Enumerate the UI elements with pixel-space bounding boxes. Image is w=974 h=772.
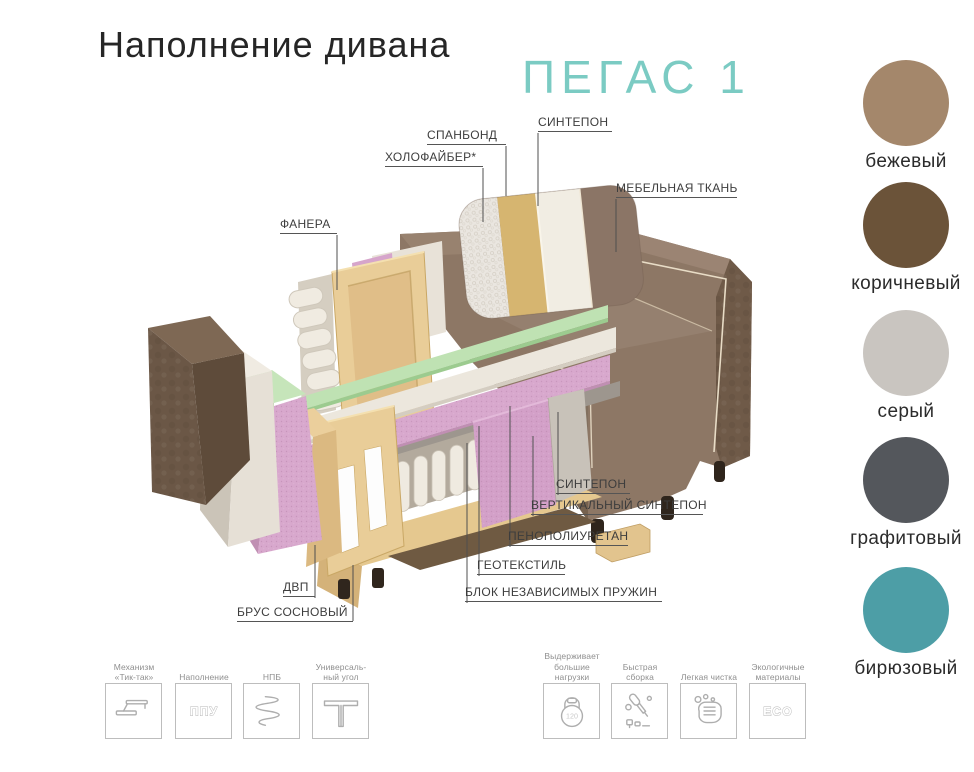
spring-block-icon bbox=[250, 689, 294, 733]
feature-tick-tock-label: Механизм «Тик-так» bbox=[97, 662, 171, 683]
swatch-beige-label: бежевый bbox=[843, 151, 969, 173]
feature-npb: НПБ bbox=[235, 645, 309, 743]
swatch-gray-circle bbox=[863, 310, 949, 396]
feature-eco-materials: Экологичные материалы ECO bbox=[741, 645, 815, 743]
feature-quick-assembly-box bbox=[611, 683, 668, 739]
feature-npb-box bbox=[243, 683, 300, 739]
layered-back-pillow bbox=[456, 183, 646, 321]
quick-assembly-icon bbox=[618, 689, 662, 733]
swatch-graphite-label: графитовый bbox=[843, 528, 969, 550]
feature-universal-corner: Универсаль- ный угол bbox=[304, 645, 378, 743]
swatch-brown-circle bbox=[863, 182, 949, 268]
label-spring-block: БЛОК НЕЗАВИСИМЫХ ПРУЖИН bbox=[465, 586, 662, 602]
feature-heavy-load-label: Выдерживает большие нагрузки bbox=[535, 651, 609, 683]
swatch-graphite-circle bbox=[863, 437, 949, 523]
swatch-beige-circle bbox=[863, 60, 949, 146]
feature-tick-tock: Механизм «Тик-так» bbox=[97, 645, 171, 743]
tick-tock-mechanism-icon bbox=[112, 689, 156, 733]
swatch-brown-label: коричневый bbox=[843, 273, 969, 295]
feature-heavy-load: Выдерживает большие нагрузки 120 bbox=[535, 645, 609, 743]
feature-filling: Наполнение ППУ bbox=[167, 645, 241, 743]
feature-npb-label: НПБ bbox=[235, 672, 309, 683]
label-plywood: ФАНЕРА bbox=[280, 218, 337, 234]
feature-eco-materials-box: ECO bbox=[749, 683, 806, 739]
easy-cleaning-icon bbox=[687, 689, 731, 733]
eco-icon-text: ECO bbox=[763, 704, 793, 718]
swatch-turquoise: бирюзовый bbox=[843, 567, 969, 680]
feature-filling-label: Наполнение bbox=[167, 672, 241, 683]
feature-heavy-load-box: 120 bbox=[543, 683, 600, 739]
label-sintepon-top: СИНТЕПОН bbox=[538, 116, 612, 132]
swatch-gray: серый bbox=[843, 310, 969, 423]
swatch-beige: бежевый bbox=[843, 60, 969, 173]
label-geotextile: ГЕОТЕКСТИЛЬ bbox=[477, 559, 565, 575]
feature-quick-assembly-label: Быстрая сборка bbox=[603, 662, 677, 683]
label-polyurethane-foam: ПЕНОПОЛИУРЕТАН bbox=[508, 530, 628, 546]
feature-easy-cleaning-box bbox=[680, 683, 737, 739]
feature-universal-corner-box bbox=[312, 683, 369, 739]
feature-universal-corner-label: Универсаль- ный угол bbox=[304, 662, 378, 683]
heavy-load-icon: 120 bbox=[550, 689, 594, 733]
label-dvp: ДВП bbox=[283, 581, 315, 597]
label-holofiber: ХОЛОФАЙБЕР* bbox=[385, 151, 483, 167]
swatch-graphite: графитовый bbox=[843, 437, 969, 550]
feature-quick-assembly: Быстрая сборка bbox=[603, 645, 677, 743]
label-pine-beam: БРУС СОСНОВЫЙ bbox=[237, 606, 353, 622]
feature-easy-cleaning: Легкая чистка bbox=[672, 645, 746, 743]
swatch-brown: коричневый bbox=[843, 182, 969, 295]
swatch-turquoise-label: бирюзовый bbox=[843, 658, 969, 680]
swatch-gray-label: серый bbox=[843, 401, 969, 423]
eco-materials-icon: ECO bbox=[756, 689, 800, 733]
feature-eco-materials-label: Экологичные материалы bbox=[741, 662, 815, 683]
ppu-icon-text: ППУ bbox=[189, 704, 217, 718]
feature-filling-box: ППУ bbox=[175, 683, 232, 739]
swatch-turquoise-circle bbox=[863, 567, 949, 653]
label-spunbond: СПАНБОНД bbox=[427, 129, 506, 145]
ppu-filling-icon: ППУ bbox=[182, 689, 226, 733]
feature-tick-tock-box bbox=[105, 683, 162, 739]
label-sintepon-bottom: СИНТЕПОН bbox=[556, 478, 630, 494]
feature-easy-cleaning-label: Легкая чистка bbox=[672, 672, 746, 683]
heavy-load-icon-text: 120 bbox=[566, 713, 578, 721]
label-furniture-fabric: МЕБЕЛЬНАЯ ТКАНЬ bbox=[616, 182, 737, 198]
universal-corner-icon bbox=[319, 689, 363, 733]
label-vertical-sintepon: ВЕРТИКАЛЬНЫЙ СИНТЕПОН bbox=[531, 499, 703, 515]
